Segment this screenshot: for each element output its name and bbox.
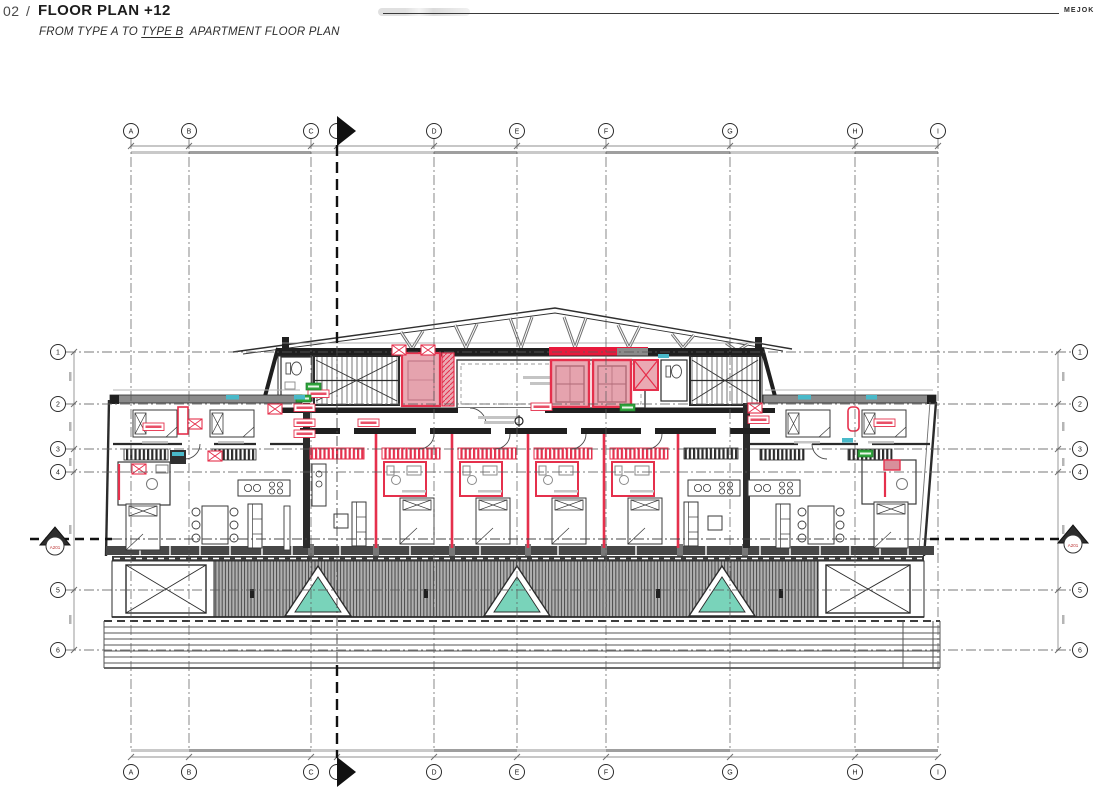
grid-col-g-bottom: G: [727, 770, 732, 777]
stairs-right: [690, 356, 760, 405]
living-room-left: [310, 448, 366, 546]
grid-row-1-right: 1: [1078, 350, 1082, 357]
section-marker-left: A201: [40, 527, 70, 555]
structural-bay-right: [826, 565, 910, 613]
floor-plan-drawing: A B C D E F G H I A B C D E F G H I 1 2 …: [0, 0, 1095, 803]
grid-col-a-top: A: [129, 129, 134, 136]
section-flag-bottom: [337, 757, 356, 787]
grid-col-b-bottom: B: [187, 770, 192, 777]
grid-col-d-bottom: D: [431, 770, 436, 777]
grid-col-c-bottom: C: [308, 770, 313, 777]
roof-outline: [233, 308, 792, 354]
section-flag-top: [337, 116, 356, 146]
corridor-wall: [300, 428, 770, 434]
grid-col-b-top: B: [187, 129, 192, 136]
structural-bay-left: [126, 565, 206, 613]
grid-col-c-top: C: [308, 129, 313, 136]
drawing-sheet: 02 / FLOOR PLAN +12 FROM TYPE A TO TYPE …: [0, 0, 1095, 803]
grid-col-f-top: F: [604, 129, 608, 136]
section-ref-left: A201: [50, 545, 61, 550]
type-b-units: [376, 430, 678, 548]
bathroom-right: [862, 460, 916, 504]
grid-row-2-left: 2: [56, 402, 60, 409]
grid-row-4-right: 4: [1078, 470, 1082, 477]
grid-col-h-top: H: [852, 129, 857, 136]
grid-row-5-left: 5: [56, 588, 60, 595]
grid-row-5-right: 5: [1078, 588, 1082, 595]
grid-col-e-top: E: [515, 129, 520, 136]
grid-col-f-bottom: F: [604, 770, 608, 777]
grid-col-h-bottom: H: [852, 770, 857, 777]
grid-col-g-top: G: [727, 129, 732, 136]
apartment-right: [743, 403, 930, 548]
elevator-1: [551, 360, 589, 407]
bathroom-left: [118, 462, 170, 505]
grid-col-d-top: D: [431, 129, 436, 136]
grid-col-a-bottom: A: [129, 770, 134, 777]
decking: [104, 621, 940, 668]
grid-col-i-bottom: I: [937, 770, 939, 777]
grid-row-3-left: 3: [56, 447, 60, 454]
terrace: [112, 556, 924, 617]
living-room-right: [684, 448, 740, 546]
grid-row-4-left: 4: [56, 470, 60, 477]
grid-col-e-bottom: E: [515, 770, 520, 777]
grid-row-6-left: 6: [56, 648, 60, 655]
core-wc-left: [281, 357, 312, 401]
grid-row-2-right: 2: [1078, 402, 1082, 409]
shaft-x: [634, 360, 658, 390]
shaft-hatch-strip: [442, 353, 454, 406]
section-ref-right: A201: [1068, 543, 1079, 548]
grid-row-6-right: 6: [1078, 648, 1082, 655]
core-lobby: [458, 408, 545, 428]
grid-col-i-top: I: [937, 129, 939, 136]
grid-row-3-right: 3: [1078, 447, 1082, 454]
elevator-2: [593, 360, 631, 407]
building-core: [264, 337, 776, 428]
grid-row-1-left: 1: [56, 350, 60, 357]
